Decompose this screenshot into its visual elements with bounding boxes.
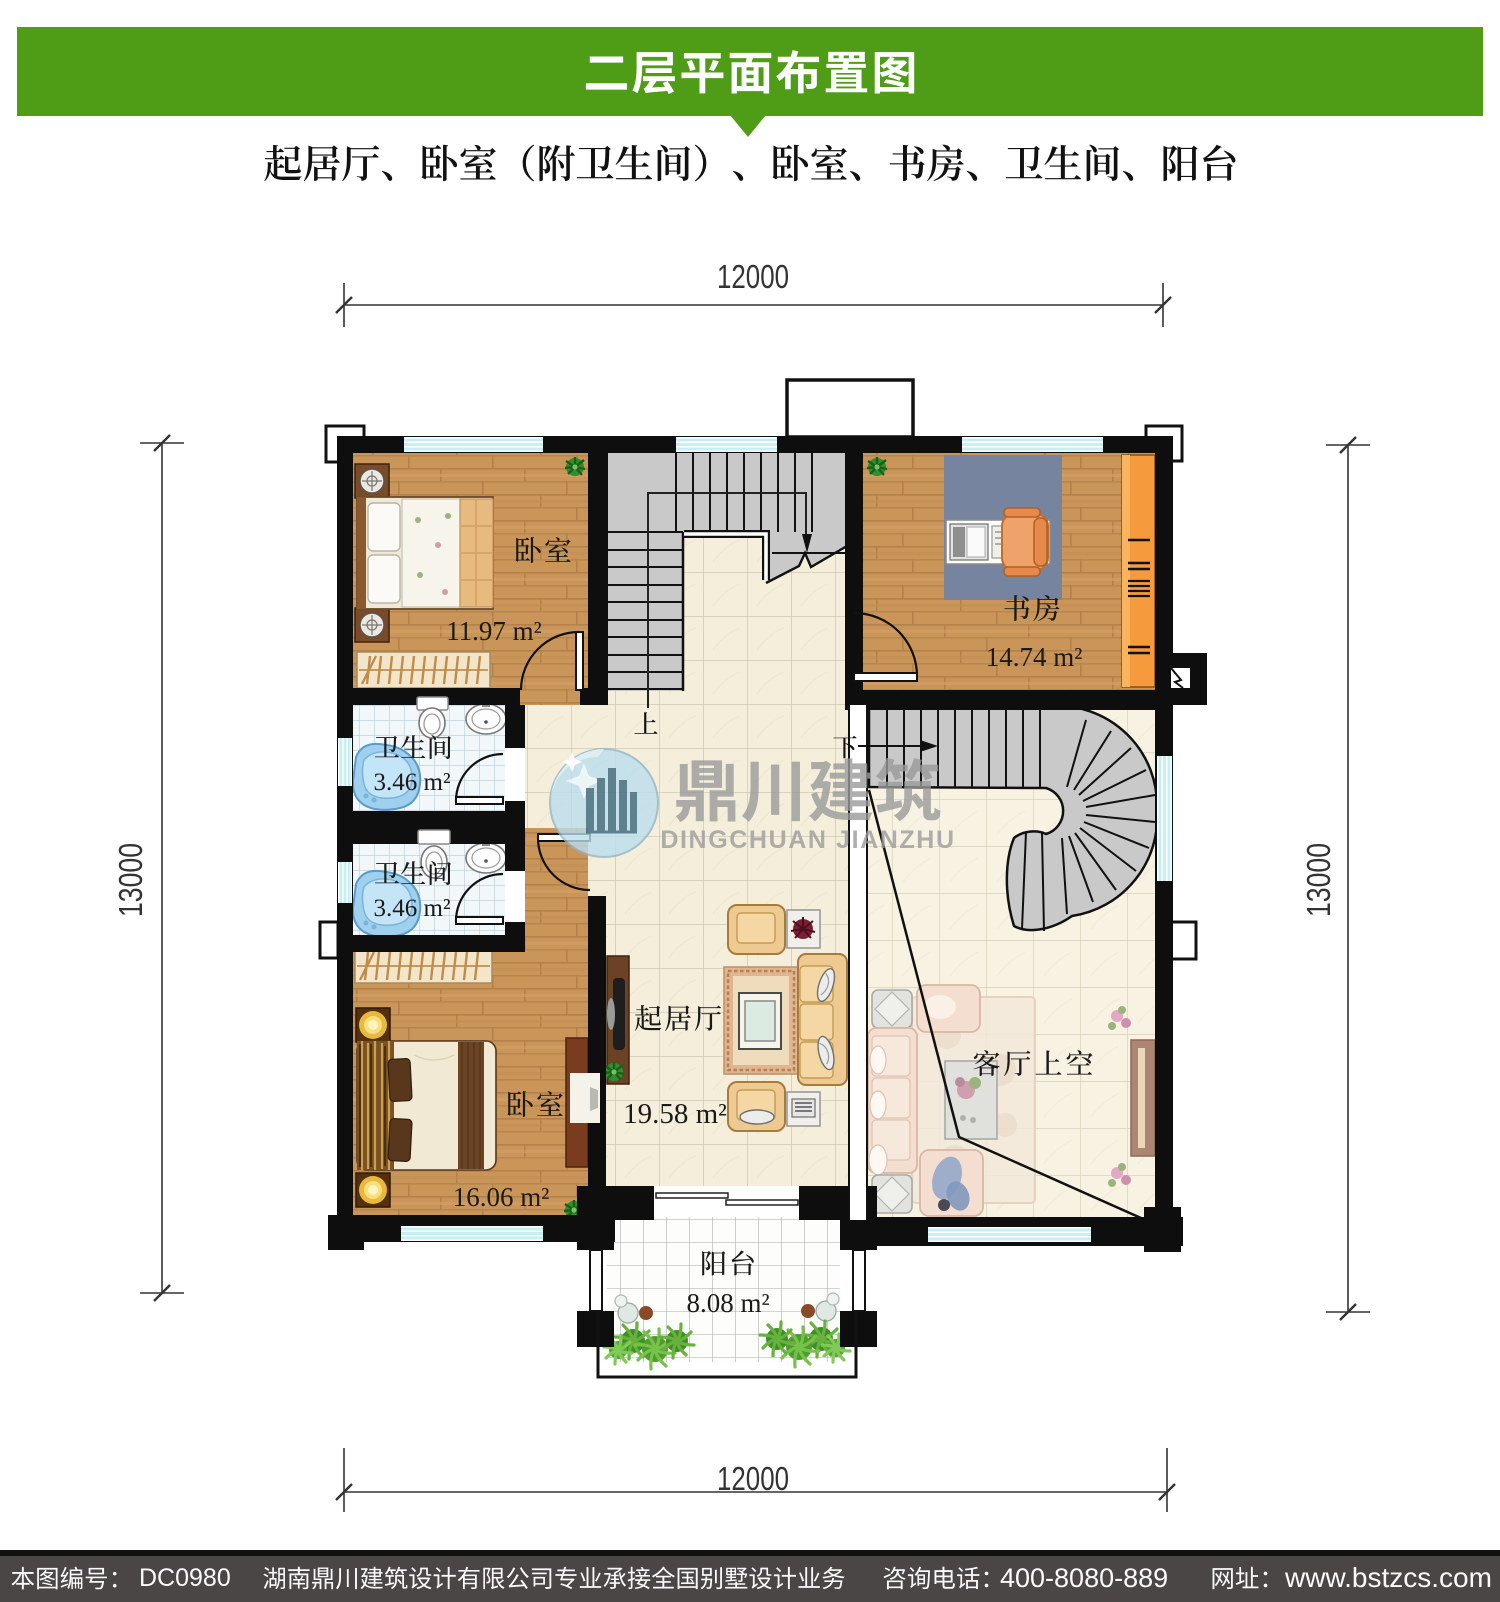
svg-text:16.06 m²: 16.06 m² (453, 1182, 550, 1212)
svg-text:11.97 m²: 11.97 m² (446, 616, 542, 646)
svg-text:3.46 m²: 3.46 m² (374, 895, 451, 922)
svg-text:DINGCHUAN JIANZHU: DINGCHUAN JIANZHU (660, 826, 955, 854)
svg-text:13000: 13000 (112, 843, 149, 917)
svg-text:14.74 m²: 14.74 m² (986, 642, 1083, 672)
svg-text:3.46 m²: 3.46 m² (374, 769, 451, 796)
svg-text:12000: 12000 (717, 258, 789, 295)
svg-text:8.08 m²: 8.08 m² (686, 1288, 769, 1318)
svg-text:13000: 13000 (1300, 843, 1337, 917)
svg-text:19.58 m²: 19.58 m² (623, 1098, 727, 1130)
svg-text:12000: 12000 (717, 1460, 789, 1497)
svg-text:www.bstzcs.com: www.bstzcs.com (1284, 1562, 1492, 1593)
svg-text:400-8080-889: 400-8080-889 (1000, 1563, 1168, 1593)
svg-text:DC0980: DC0980 (139, 1564, 231, 1592)
